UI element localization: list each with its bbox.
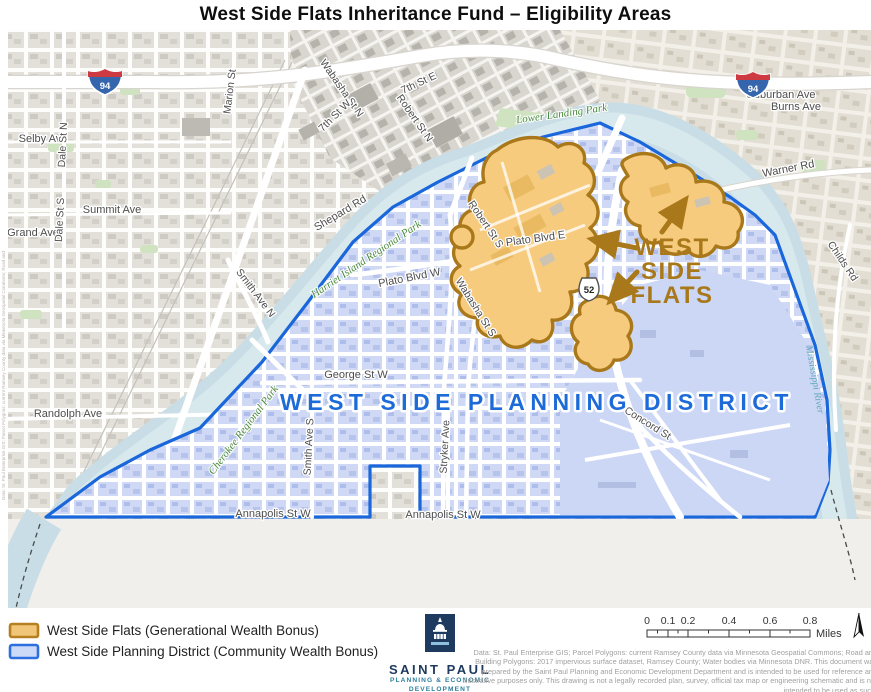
legend-label: West Side Flats (Generational Wealth Bon… [47, 623, 319, 638]
svg-text:94: 94 [748, 84, 759, 95]
svg-text:52: 52 [584, 285, 595, 296]
svg-text:0.1: 0.1 [661, 615, 676, 627]
street-label: George St W [324, 369, 388, 381]
svg-text:94: 94 [100, 81, 111, 92]
map-document: West Side Flats Inheritance Fund – Eligi… [0, 0, 871, 692]
street-label: Summit Ave [83, 204, 142, 216]
svg-text:Miles: Miles [816, 628, 842, 640]
street-label: Grand Ave [7, 227, 59, 239]
map-svg: Marion St Wabasha St N 7th St E 7th St W… [0, 30, 871, 608]
legend: West Side Flats (Generational Wealth Bon… [8, 620, 378, 662]
svg-text:FLATS: FLATS [630, 282, 713, 309]
svg-text:SIDE: SIDE [641, 258, 703, 285]
svg-text:WEST: WEST [634, 234, 709, 261]
legend-item-flats: West Side Flats (Generational Wealth Bon… [8, 620, 378, 641]
us-52-shield-icon: 52 [579, 278, 599, 301]
street-label: Dale St S [53, 197, 67, 242]
map-footer: West Side Flats (Generational Wealth Bon… [0, 608, 871, 692]
street-label: Burns Ave [771, 101, 821, 113]
west-side-flats-label: WEST SIDE FLATS [630, 234, 713, 309]
svg-text:0.2: 0.2 [681, 615, 696, 627]
flats-swatch-icon [8, 622, 40, 639]
side-attribution: Data: St. Paul Enterprise GIS; Parcel Po… [1, 251, 6, 500]
svg-text:0.6: 0.6 [763, 615, 778, 627]
scale-bar: 0 0.1 0.2 0.4 0.6 0.8 Miles [636, 612, 871, 646]
street-label: Annapolis St W [405, 509, 481, 521]
svg-text:0.4: 0.4 [722, 615, 737, 627]
planning-district-label: WEST SIDE PLANNING DISTRICT [280, 389, 794, 415]
street-label: Randolph Ave [34, 408, 102, 420]
flats-west-circle[interactable] [451, 226, 473, 248]
district-swatch-icon [8, 643, 40, 660]
data-disclaimer: Data: St. Paul Enterprise GIS; Parcel Po… [463, 648, 871, 692]
north-arrow-icon [849, 612, 869, 642]
street-label: Annapolis St W [235, 508, 311, 520]
svg-text:0: 0 [644, 615, 650, 627]
svg-text:0.8: 0.8 [803, 615, 818, 627]
legend-item-district: West Side Planning District (Community W… [8, 641, 378, 662]
street-label: Dale St N [56, 122, 70, 168]
map-canvas[interactable]: Marion St Wabasha St N 7th St E 7th St W… [0, 30, 871, 608]
legend-label: West Side Planning District (Community W… [47, 644, 378, 659]
capitol-building-icon [425, 614, 455, 652]
page-title: West Side Flats Inheritance Fund – Eligi… [0, 0, 871, 30]
